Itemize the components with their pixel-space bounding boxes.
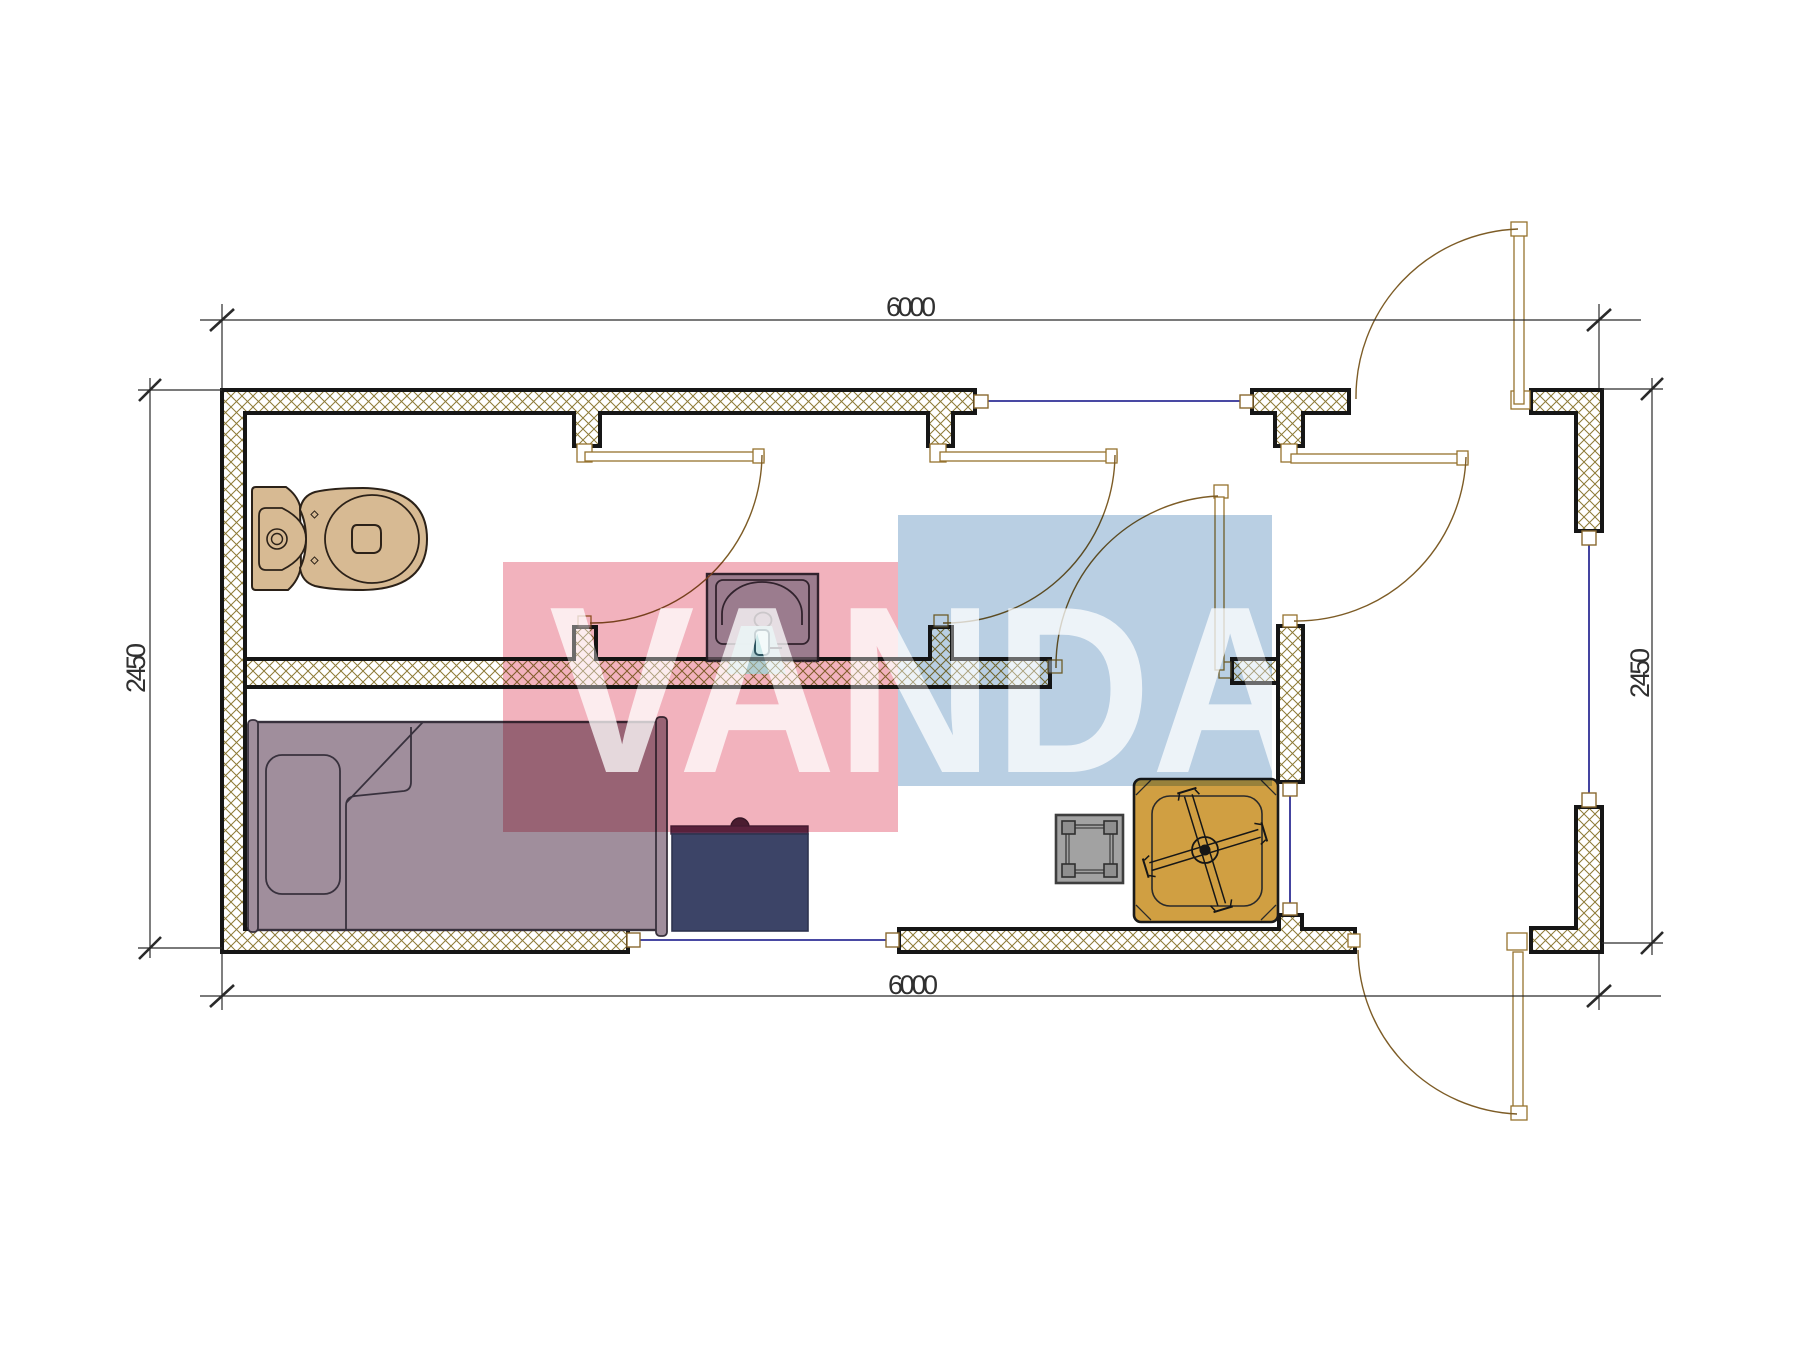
svg-text:2450: 2450 xyxy=(1625,648,1655,698)
svg-text:VANDA: VANDA xyxy=(549,558,1309,823)
svg-text:2450: 2450 xyxy=(121,643,151,693)
svg-text:6000: 6000 xyxy=(888,970,938,1000)
svg-text:6000: 6000 xyxy=(886,292,936,322)
